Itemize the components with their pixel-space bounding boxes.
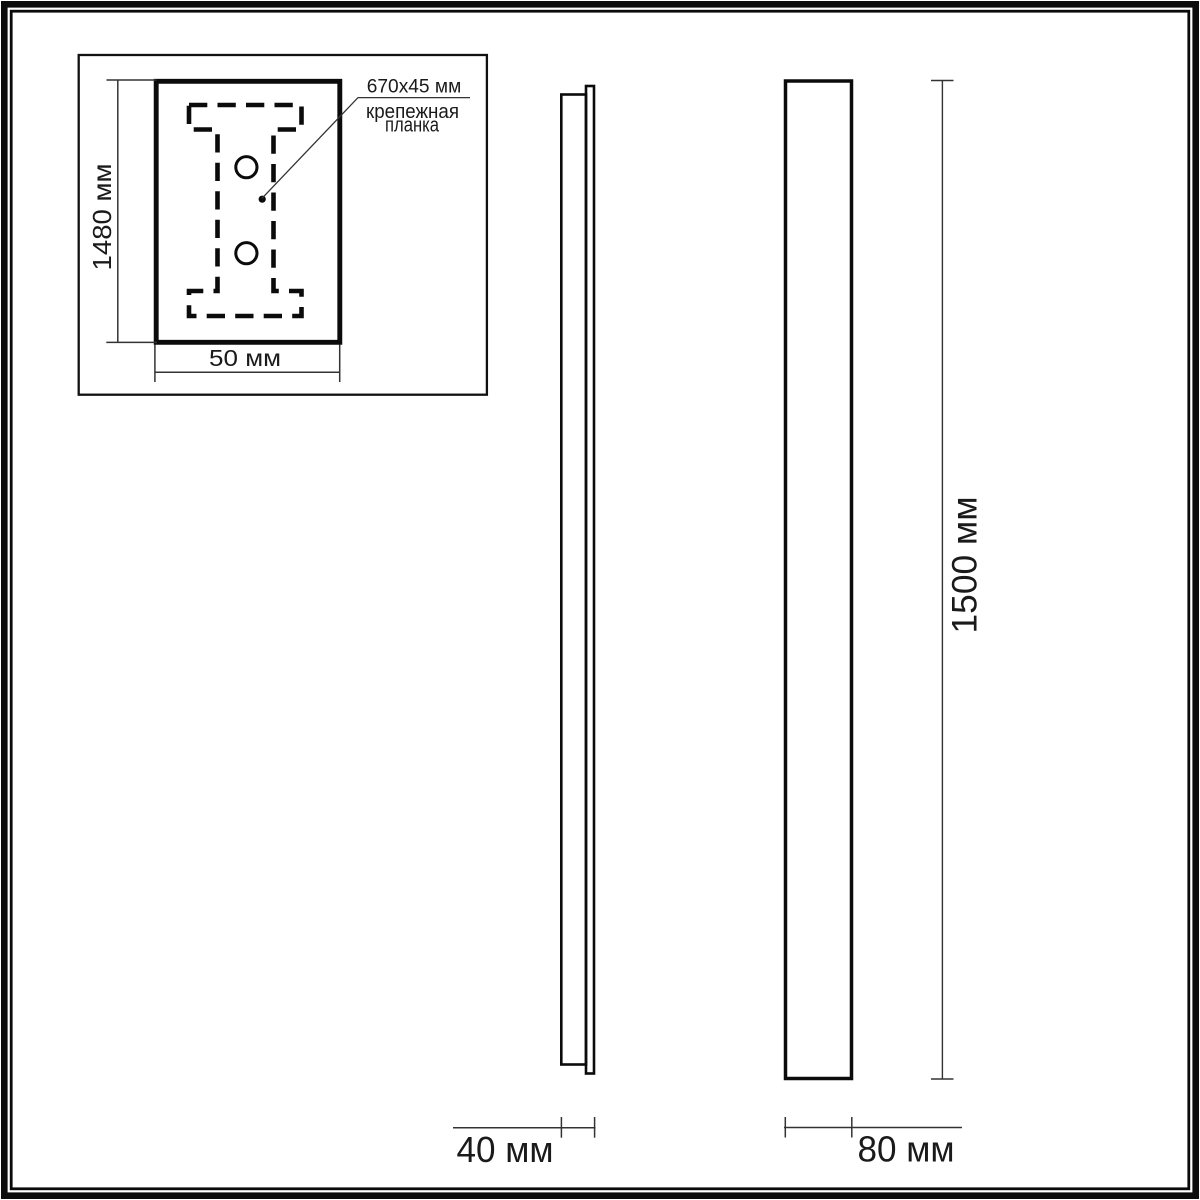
svg-text:80 мм: 80 мм [858,1129,955,1170]
svg-text:670х45 мм: 670х45 мм [367,76,462,98]
svg-text:1500 мм: 1500 мм [945,497,984,634]
svg-text:50 мм: 50 мм [209,345,281,371]
svg-text:40 мм: 40 мм [457,1129,554,1170]
svg-text:1480 мм: 1480 мм [87,164,117,271]
svg-text:планка: планка [385,115,440,137]
